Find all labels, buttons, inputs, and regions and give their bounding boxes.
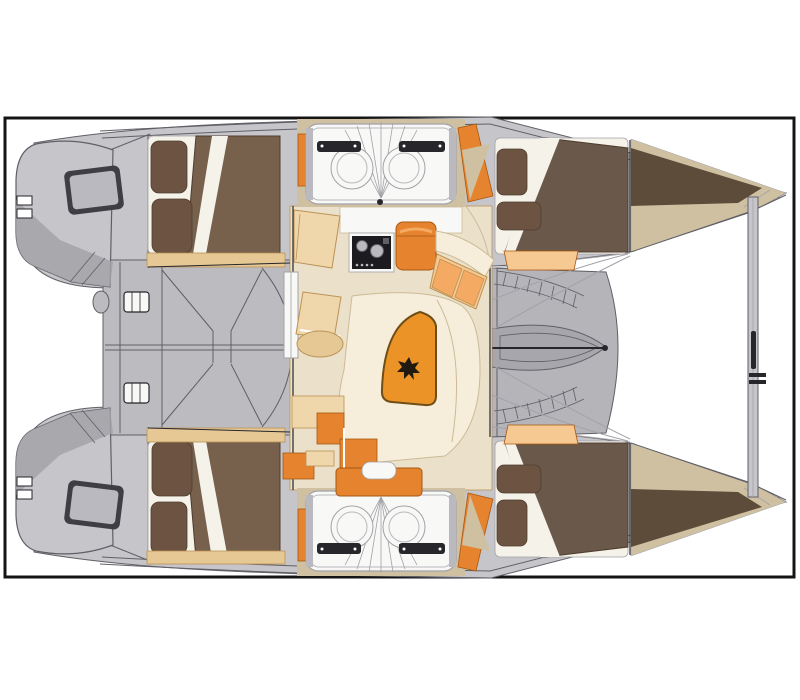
transom [16,141,124,287]
stove-control [383,238,389,244]
page: { "plan": { "title": "Catamaran interior… [0,0,800,700]
bridle-bar [749,380,766,384]
berth-foot-shelf [504,251,578,270]
foredeck-trampoline [489,253,630,442]
vanity-side [449,128,456,200]
boarding-handle [93,291,109,313]
mast-post [296,292,343,357]
step-tab [362,462,396,479]
post-base [297,331,343,357]
fridge [396,222,436,270]
aft-cabin-berth [147,136,285,267]
pillow [151,141,187,193]
bowsprit-fitting [751,331,756,369]
stern-step-mark [17,196,32,205]
aft-cockpit [93,260,293,435]
fwd-cabin-berth [495,138,630,270]
burner [371,245,384,258]
catamaran-floor-plan: Catamaran interior layout plan — top vie… [0,0,800,700]
pillow [497,202,541,230]
cockpit-fitting-top [124,292,149,312]
galley-cabinet [294,210,340,268]
vanity-side [306,128,313,200]
stern-step-mark [17,209,32,218]
transom-window [64,165,125,215]
stove [349,233,394,272]
burner [357,241,368,252]
bow-fitting-dot [602,345,608,351]
dinette [339,293,480,462]
drain-dot [377,199,383,205]
bridle-bar [749,373,766,377]
cockpit-fitting-bottom [124,383,149,403]
starboard-outer-shelf [147,551,285,564]
cockpit-sole [103,260,293,435]
pillow [497,149,527,195]
bathroom-vanity [297,119,493,207]
pillow [152,199,192,253]
cockpit-sliding-door [284,272,298,358]
vanity-shelf-bar [399,141,445,152]
